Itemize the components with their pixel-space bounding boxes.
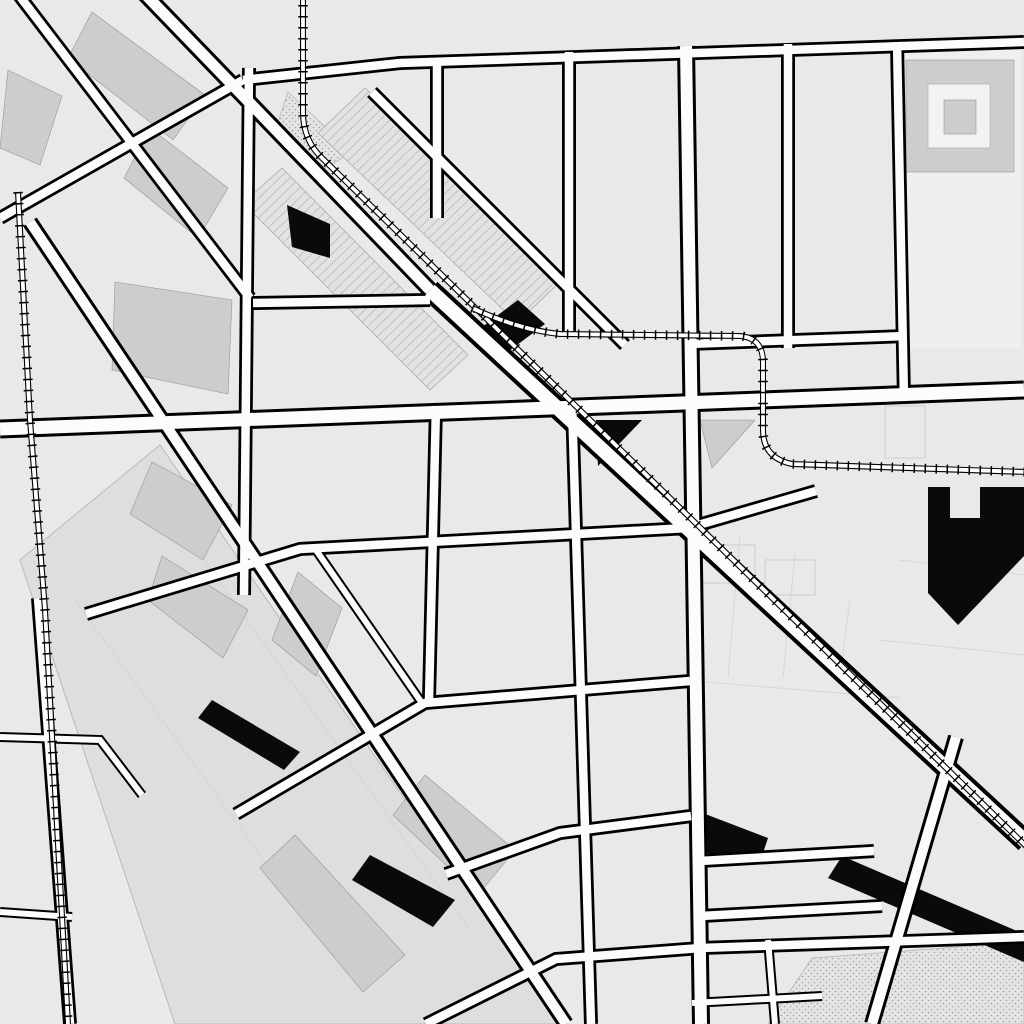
map-viewport[interactable]	[0, 0, 1024, 1024]
map-canvas[interactable]	[0, 0, 1024, 1024]
campus-block	[893, 48, 1021, 348]
